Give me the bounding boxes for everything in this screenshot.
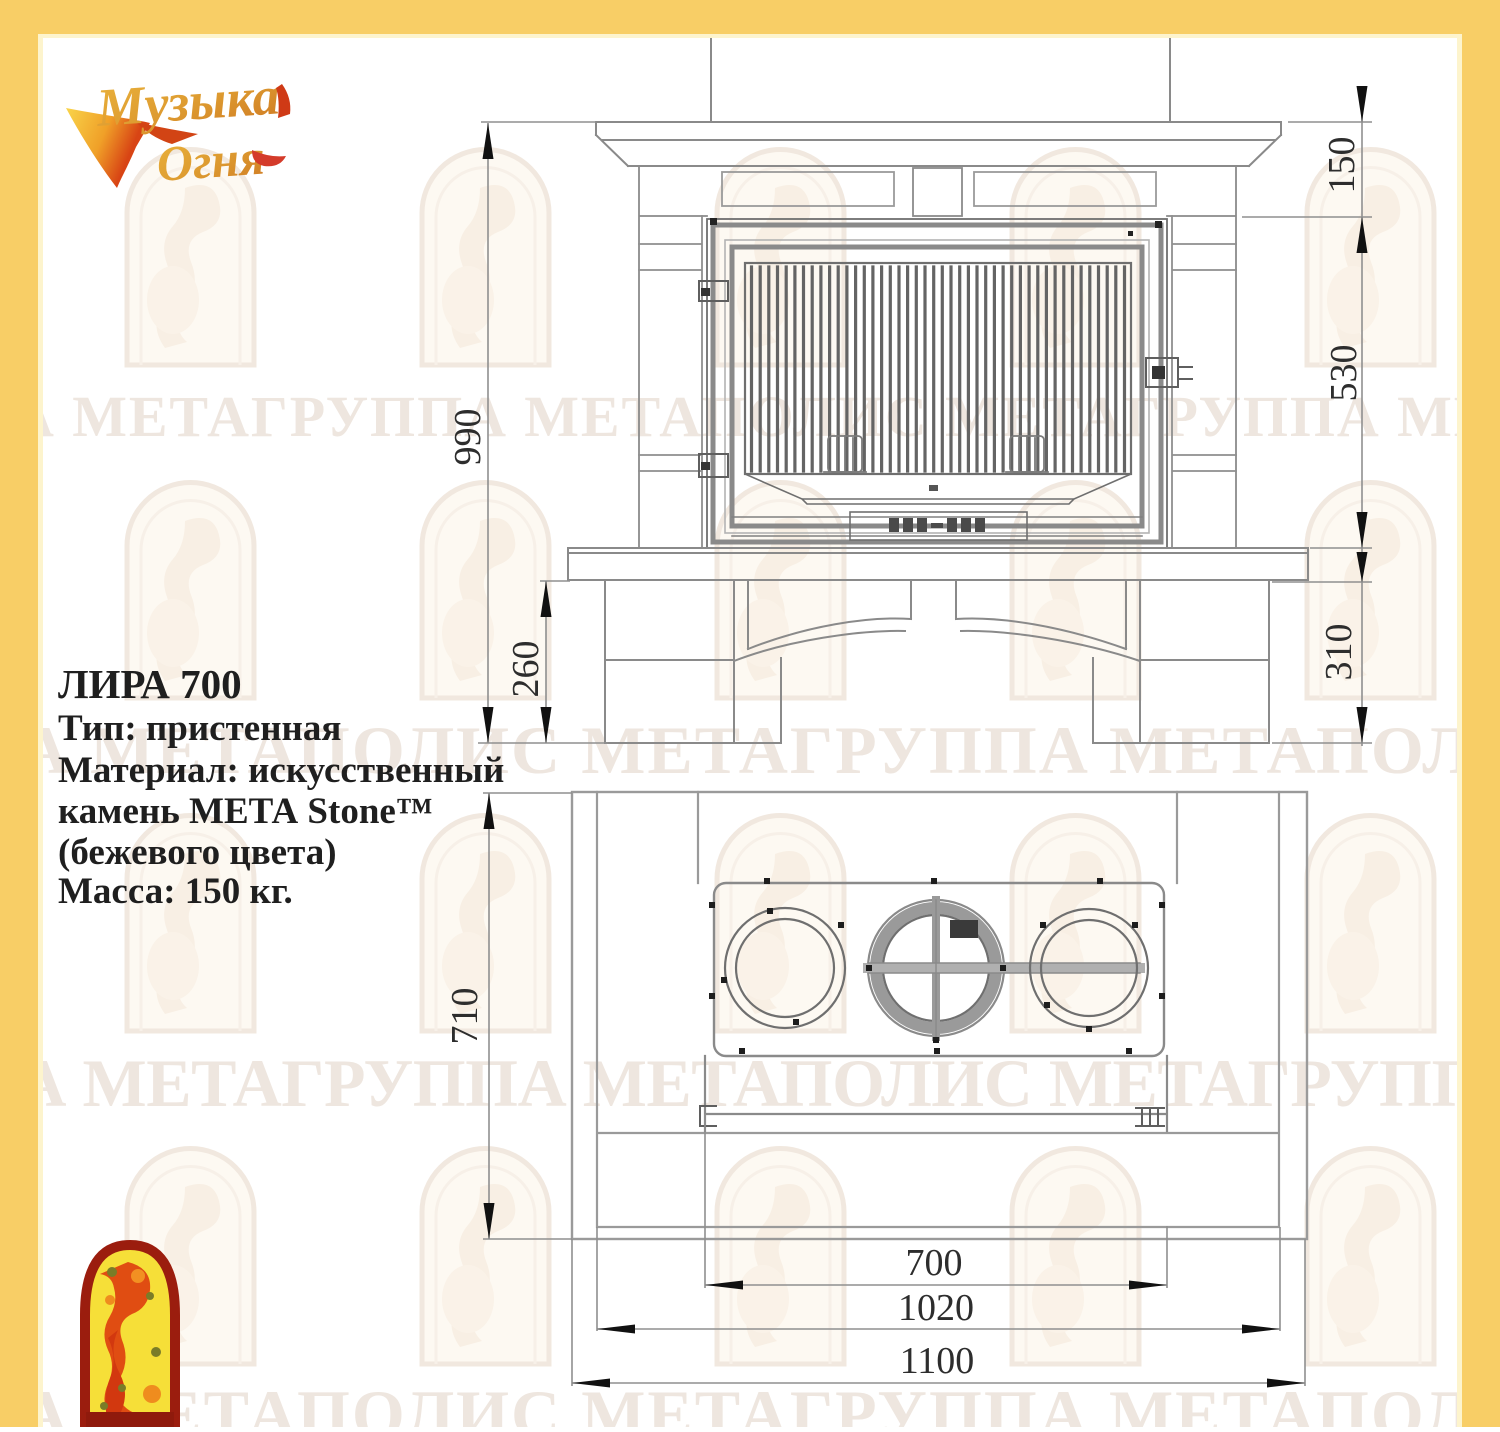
svg-text:ЛИРА 700: ЛИРА 700 — [58, 661, 242, 707]
svg-text:530: 530 — [1323, 345, 1365, 402]
svg-text:(бежевого цвета): (бежевого цвета) — [58, 832, 337, 873]
svg-text:1020: 1020 — [898, 1287, 974, 1329]
svg-text:Материал: искусственный: Материал: искусственный — [58, 750, 504, 791]
svg-text:990: 990 — [447, 409, 489, 466]
svg-text:700: 700 — [906, 1242, 963, 1284]
svg-text:Тип: пристенная: Тип: пристенная — [58, 708, 341, 749]
svg-text:710: 710 — [444, 988, 486, 1045]
svg-text:Музыка: Музыка — [94, 65, 282, 138]
svg-text:Масса: 150 кг.: Масса: 150 кг. — [58, 871, 293, 912]
svg-text:камень МЕТА Stone™: камень МЕТА Stone™ — [58, 791, 433, 832]
svg-text:260: 260 — [505, 641, 547, 698]
svg-text:Огня: Огня — [155, 129, 267, 192]
svg-text:150: 150 — [1321, 137, 1363, 194]
svg-text:1100: 1100 — [900, 1340, 975, 1382]
svg-text:310: 310 — [1318, 624, 1360, 681]
